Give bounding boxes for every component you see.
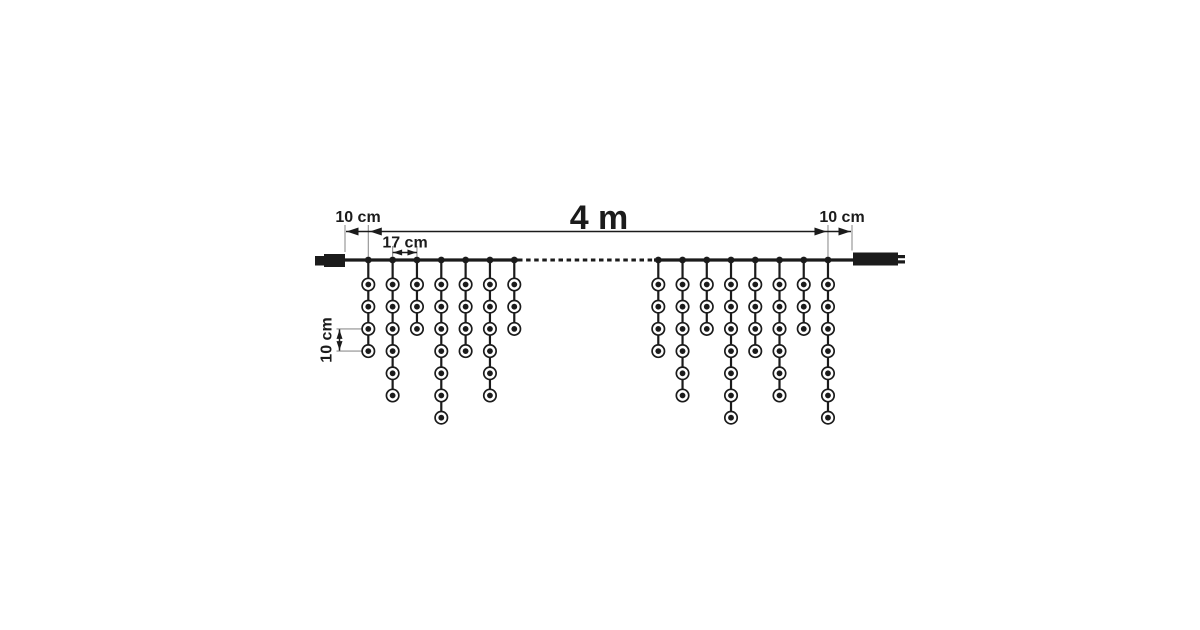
label-right-end-offset: 10 cm [819, 209, 864, 226]
bulb-filament-icon [825, 282, 831, 288]
bulb-filament-icon [463, 304, 469, 310]
bulb-filament-icon [728, 393, 734, 399]
bulb-filament-icon [728, 282, 734, 288]
bulb-filament-icon [655, 282, 661, 288]
right-group-cable-node [679, 257, 686, 264]
bulb-filament-icon [390, 393, 396, 399]
bulb-filament-icon [487, 393, 493, 399]
bulb-filament-icon [414, 282, 420, 288]
bulb-filament-icon [438, 326, 444, 332]
bulb-filament-icon [414, 304, 420, 310]
bulb-filament-icon [728, 304, 734, 310]
bulb-filament-icon [704, 326, 710, 332]
bulb-filament-icon [680, 370, 686, 376]
label-bulb-spacing: 10 cm [319, 317, 336, 362]
bulb-filament-icon [438, 370, 444, 376]
bulb-filament-icon [728, 326, 734, 332]
right-group-cable-node [728, 257, 735, 264]
bulb-filament-icon [463, 326, 469, 332]
label-left-end-offset: 10 cm [335, 209, 380, 226]
bulb-filament-icon [777, 393, 783, 399]
bulb-filament-icon [752, 348, 758, 354]
bulb-filament-icon [752, 304, 758, 310]
left-connector-collar [315, 256, 325, 266]
diagram-generated-layer [315, 225, 905, 424]
bulb-filament-icon [777, 282, 783, 288]
arrow-left-offset [347, 228, 359, 236]
bulb-filament-icon [365, 348, 371, 354]
right-group-cable-node [703, 257, 710, 264]
left-group-cable-node [414, 257, 421, 264]
bulb-filament-icon [801, 304, 807, 310]
bulb-filament-icon [463, 348, 469, 354]
bulb-filament-icon [487, 370, 493, 376]
bulb-filament-icon [414, 326, 420, 332]
right-connector-body [853, 253, 898, 266]
bulb-filament-icon [655, 326, 661, 332]
bulb-filament-icon [438, 415, 444, 421]
bulb-filament-icon [825, 393, 831, 399]
bulb-filament-icon [390, 326, 396, 332]
bulb-filament-icon [680, 304, 686, 310]
bulb-filament-icon [365, 326, 371, 332]
right-group-cable-node [776, 257, 783, 264]
left-group-cable-node [365, 257, 372, 264]
arrow-total-right [814, 228, 826, 236]
bulb-filament-icon [728, 415, 734, 421]
bulb-filament-icon [777, 348, 783, 354]
bulb-filament-icon [487, 282, 493, 288]
left-group-cable-node [438, 257, 445, 264]
label-drop-spacing: 17 cm [382, 235, 427, 252]
bulb-filament-icon [463, 282, 469, 288]
bulb-filament-icon [825, 370, 831, 376]
bulb-filament-icon [511, 326, 517, 332]
left-group-cable-node [462, 257, 469, 264]
bulb-filament-icon [511, 304, 517, 310]
left-group-cable-node [487, 257, 494, 264]
bulb-filament-icon [777, 370, 783, 376]
bulb-filament-icon [825, 415, 831, 421]
bulb-filament-icon [390, 370, 396, 376]
bulb-filament-icon [365, 304, 371, 310]
bulb-filament-icon [777, 304, 783, 310]
left-group-cable-node [511, 257, 518, 264]
bulb-filament-icon [487, 304, 493, 310]
bulb-filament-icon [438, 393, 444, 399]
bulb-filament-icon [511, 282, 517, 288]
right-connector-prong-top [898, 255, 905, 258]
bulb-filament-icon [825, 304, 831, 310]
bulb-filament-icon [752, 326, 758, 332]
bulb-filament-icon [704, 304, 710, 310]
bulb-filament-icon [825, 348, 831, 354]
right-connector-prong-bottom [898, 260, 905, 263]
bulb-filament-icon [680, 348, 686, 354]
left-group-cable-node [389, 257, 396, 264]
bulb-filament-icon [487, 348, 493, 354]
left-connector-body [324, 254, 345, 267]
right-group-cable-node [825, 257, 832, 264]
bulb-filament-icon [438, 282, 444, 288]
diagram-canvas: 10 cm 4 m 10 cm 17 cm 10 cm [0, 0, 1200, 630]
label-total-length: 4 m [570, 199, 629, 237]
bulb-filament-icon [728, 348, 734, 354]
bulb-filament-icon [801, 282, 807, 288]
arrow-bulb-spacing-bottom [337, 341, 343, 350]
right-group-cable-node [655, 257, 662, 264]
bulb-filament-icon [704, 282, 710, 288]
icicle-lights-diagram: 10 cm 4 m 10 cm 17 cm 10 cm [0, 0, 1200, 630]
bulb-filament-icon [777, 326, 783, 332]
bulb-filament-icon [487, 326, 493, 332]
bulb-filament-icon [825, 326, 831, 332]
arrow-bulb-spacing-top [337, 330, 343, 339]
bulb-filament-icon [680, 393, 686, 399]
bulb-filament-icon [390, 304, 396, 310]
bulb-filament-icon [728, 370, 734, 376]
bulb-filament-icon [390, 282, 396, 288]
bulb-filament-icon [655, 348, 661, 354]
bulb-filament-icon [801, 326, 807, 332]
bulb-filament-icon [680, 326, 686, 332]
bulb-filament-icon [390, 348, 396, 354]
bulb-filament-icon [365, 282, 371, 288]
right-group-cable-node [800, 257, 807, 264]
arrow-right-offset [839, 228, 851, 236]
arrow-total-left [370, 228, 382, 236]
bulb-filament-icon [438, 304, 444, 310]
bulb-filament-icon [680, 282, 686, 288]
bulb-filament-icon [655, 304, 661, 310]
bulb-filament-icon [438, 348, 444, 354]
bulb-filament-icon [752, 282, 758, 288]
right-group-cable-node [752, 257, 759, 264]
